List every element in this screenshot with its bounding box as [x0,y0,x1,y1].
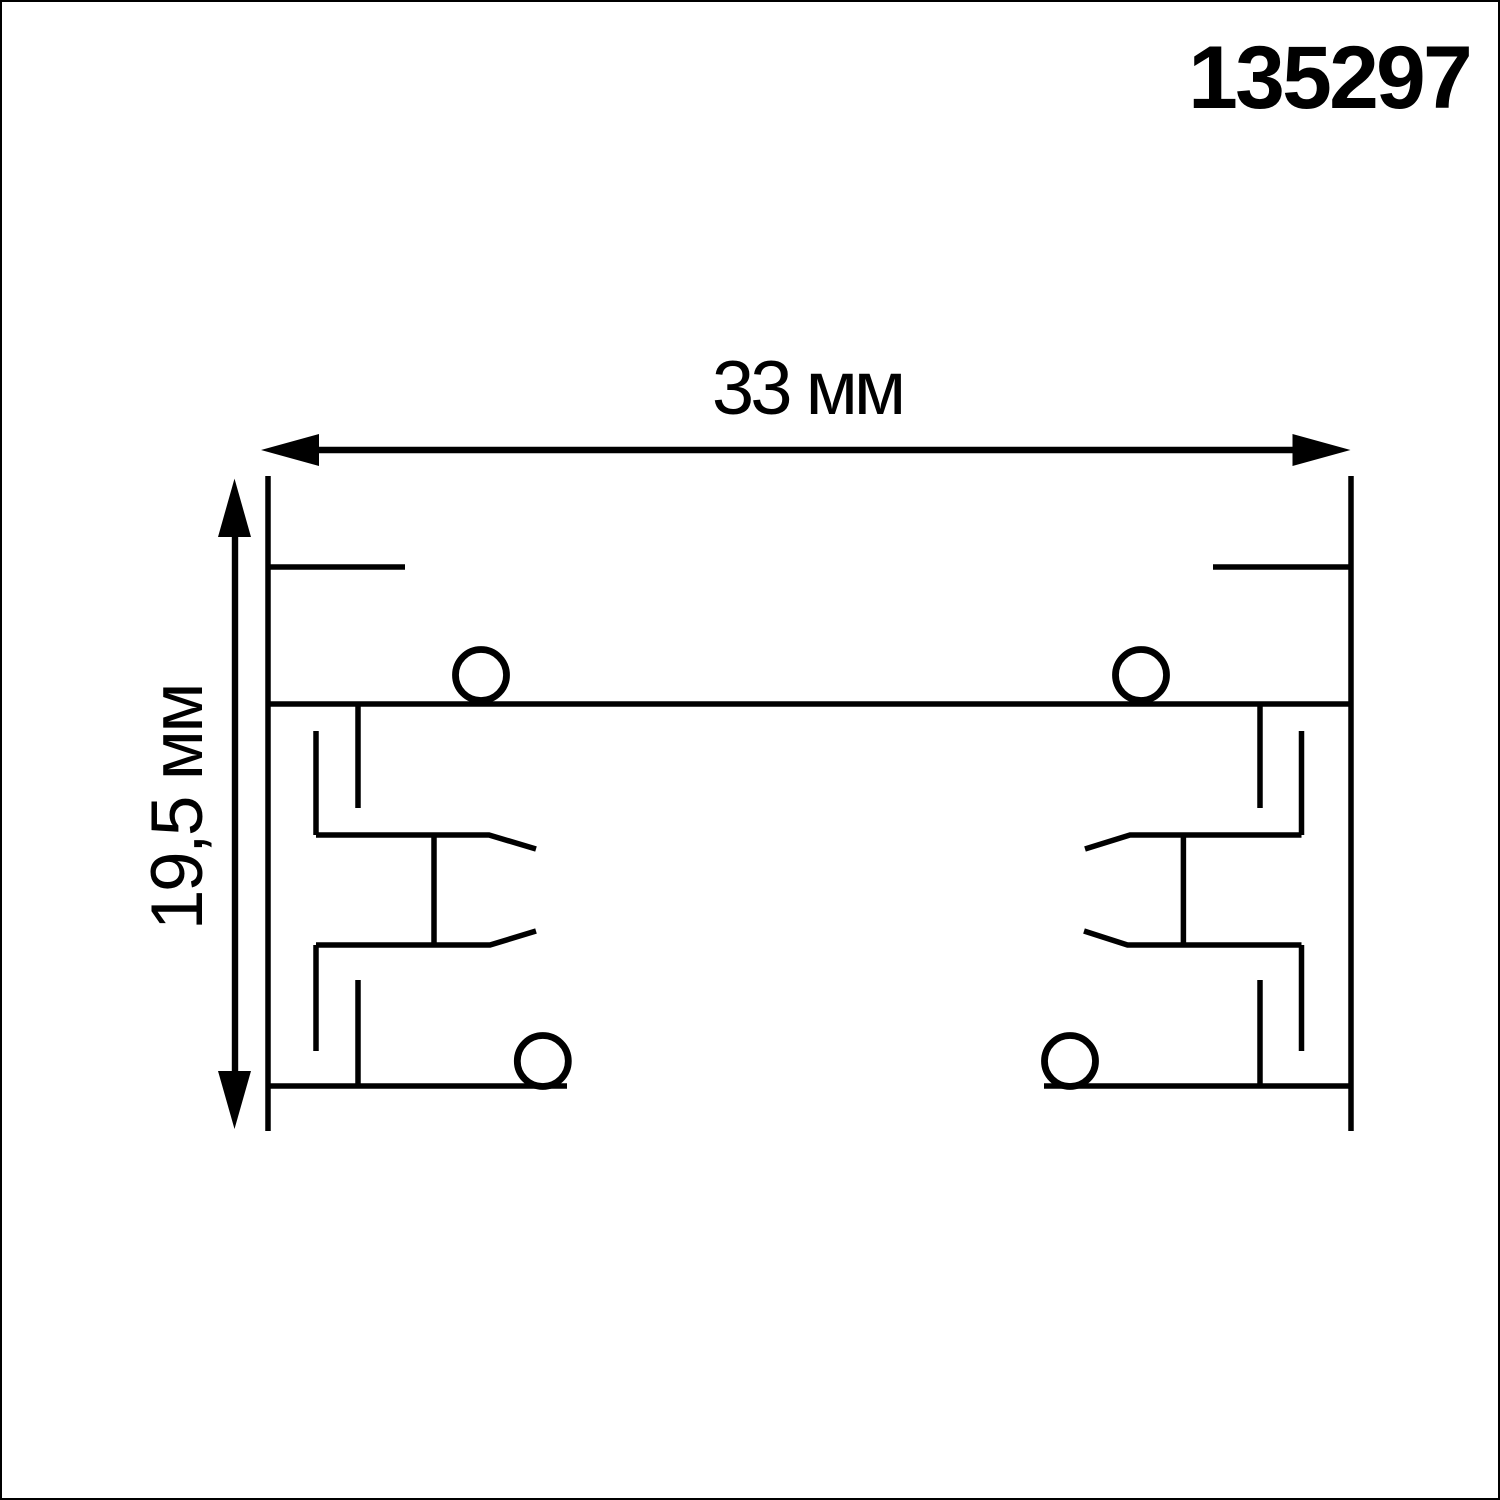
svg-text:135297: 135297 [1188,27,1470,127]
svg-text:33 мм: 33 мм [712,346,902,431]
svg-text:19,5 мм: 19,5 мм [137,685,218,930]
